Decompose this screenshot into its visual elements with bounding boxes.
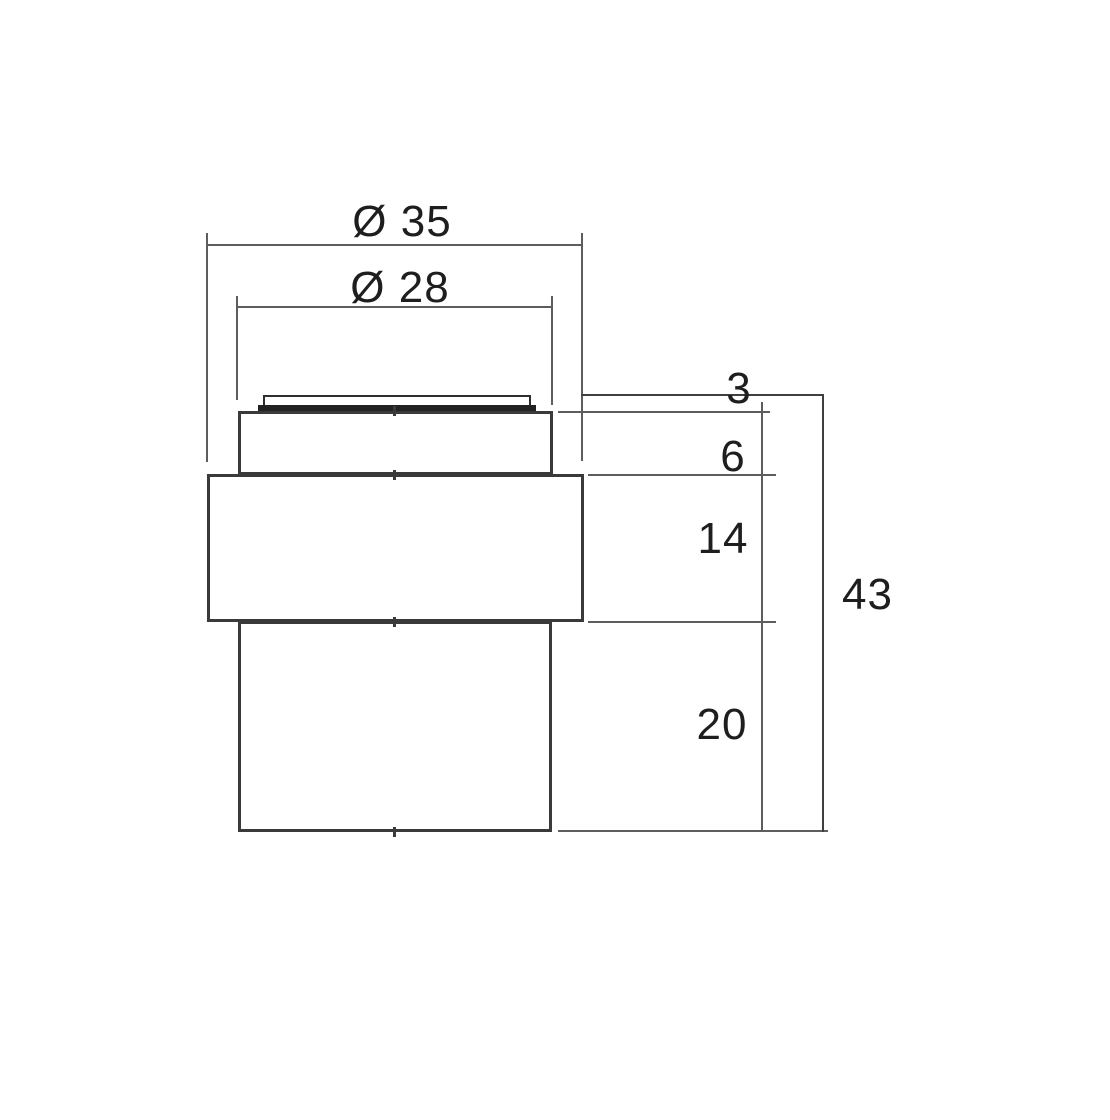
dim-label-neck-height: 6 bbox=[720, 435, 745, 479]
dim-label-base-height: 20 bbox=[697, 703, 748, 747]
dim-line-total-height bbox=[822, 394, 824, 832]
center-mark bbox=[393, 470, 396, 480]
center-mark bbox=[393, 617, 396, 627]
dim-extension-line-top bbox=[581, 394, 824, 396]
dim-extension-line-dia35-right bbox=[581, 233, 583, 461]
dim-extension-line-flange-bottom bbox=[588, 621, 776, 623]
dim-extension-line-dia28-right bbox=[551, 296, 553, 405]
center-mark bbox=[393, 827, 396, 837]
part-neck-section bbox=[238, 411, 553, 475]
part-flange-section bbox=[207, 474, 584, 622]
center-mark bbox=[393, 406, 396, 416]
technical-drawing-canvas: Ø 35 Ø 28 3 6 14 20 43 bbox=[0, 0, 1110, 1120]
dim-label-inner-diameter: Ø 28 bbox=[350, 266, 449, 310]
dim-label-outer-diameter: Ø 35 bbox=[352, 200, 451, 244]
part-base-section bbox=[238, 621, 552, 832]
dim-line-segment-chain bbox=[761, 402, 763, 832]
dim-extension-line-base-bottom bbox=[558, 830, 828, 832]
cap-seat-line bbox=[258, 405, 536, 411]
dim-label-cap-height: 3 bbox=[726, 367, 751, 411]
dim-label-total-height: 43 bbox=[842, 573, 893, 617]
dim-extension-line-dia28-left bbox=[236, 296, 238, 400]
dim-label-flange-height: 14 bbox=[698, 517, 749, 561]
dim-extension-line-dia35-left bbox=[206, 233, 208, 462]
dim-extension-line-neck-bottom bbox=[588, 474, 776, 476]
